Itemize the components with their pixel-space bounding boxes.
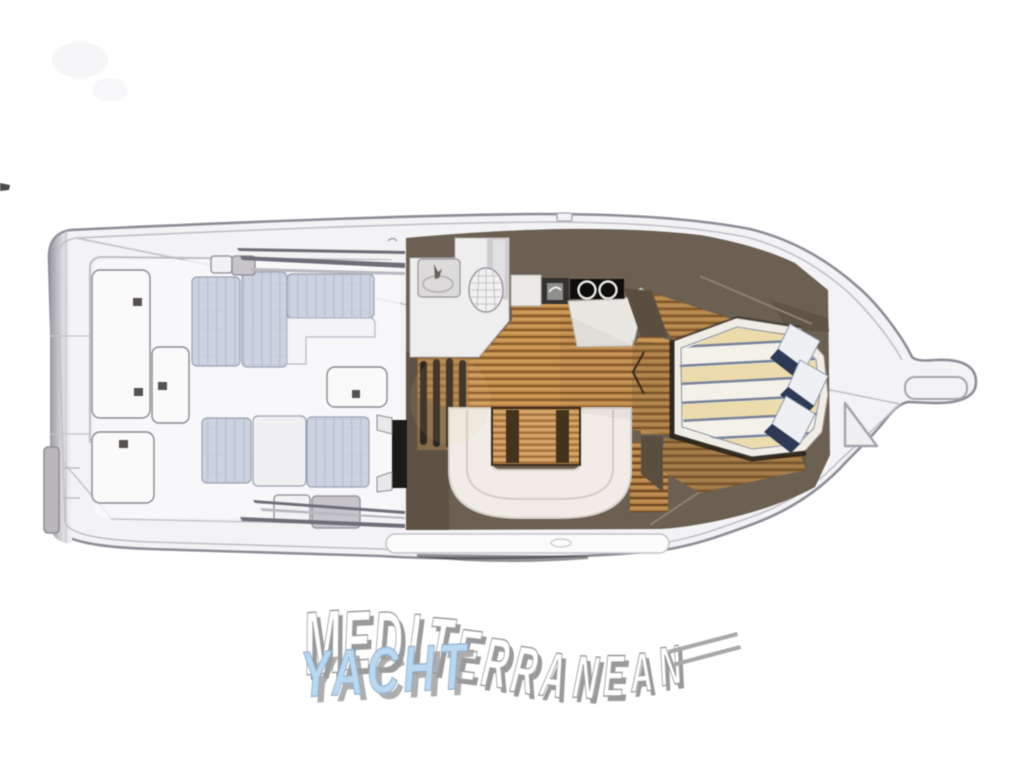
svg-text:YACHT: YACHT bbox=[299, 630, 472, 711]
svg-text:E: E bbox=[603, 644, 625, 708]
